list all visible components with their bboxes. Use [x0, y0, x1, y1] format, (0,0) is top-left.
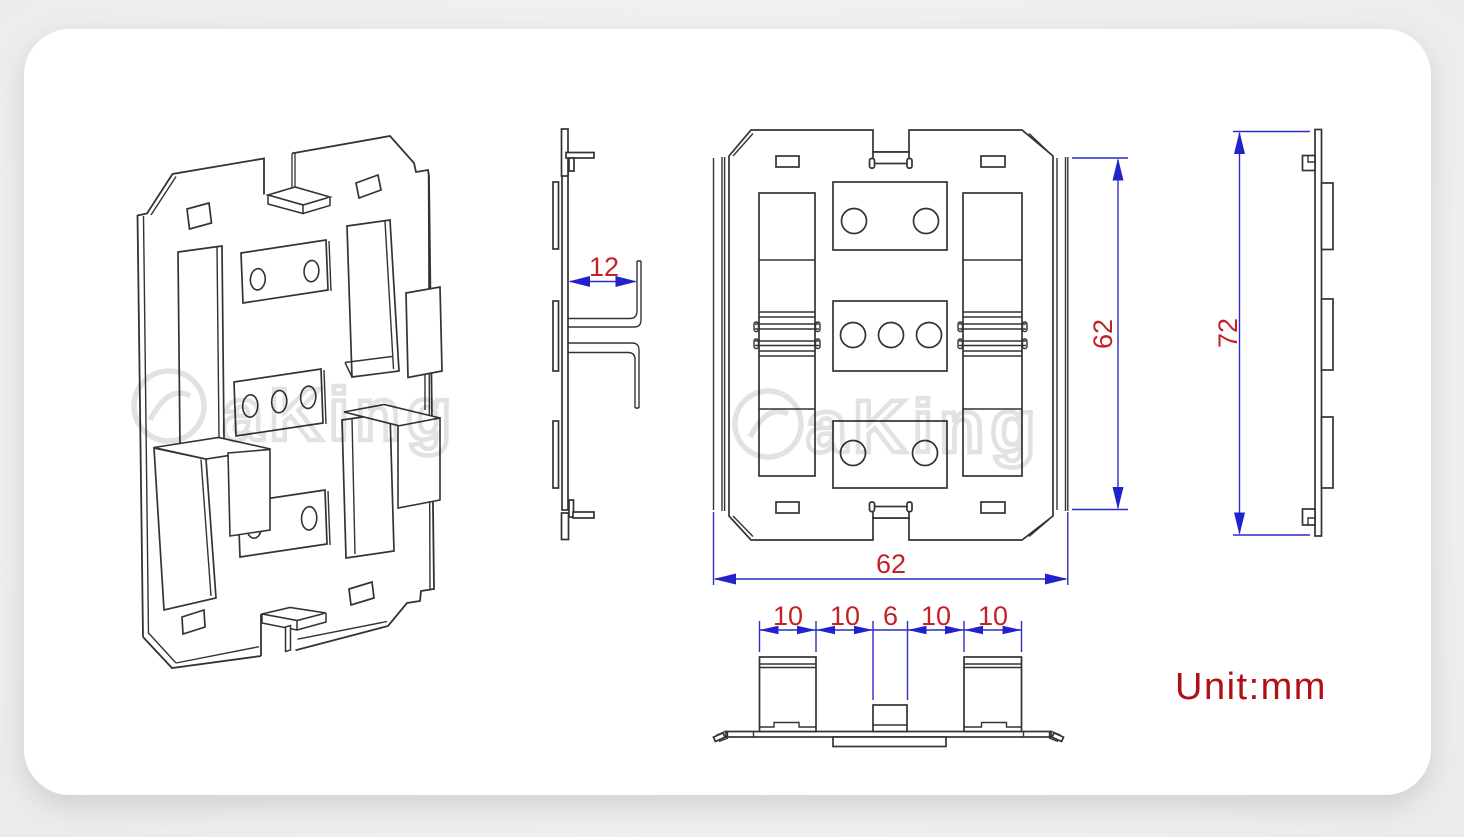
svg-text:62: 62 — [1088, 319, 1118, 349]
svg-text:10: 10 — [773, 601, 803, 631]
svg-text:Unit:mm: Unit:mm — [1175, 666, 1327, 708]
svg-text:72: 72 — [1213, 318, 1243, 348]
svg-text:10: 10 — [978, 601, 1008, 631]
svg-text:aKing: aKing — [806, 385, 1042, 468]
svg-text:10: 10 — [921, 601, 951, 631]
svg-text:aKing: aKing — [222, 373, 458, 456]
svg-text:12: 12 — [589, 252, 619, 282]
svg-text:62: 62 — [876, 549, 906, 579]
svg-text:10: 10 — [830, 601, 860, 631]
svg-text:6: 6 — [883, 601, 898, 631]
